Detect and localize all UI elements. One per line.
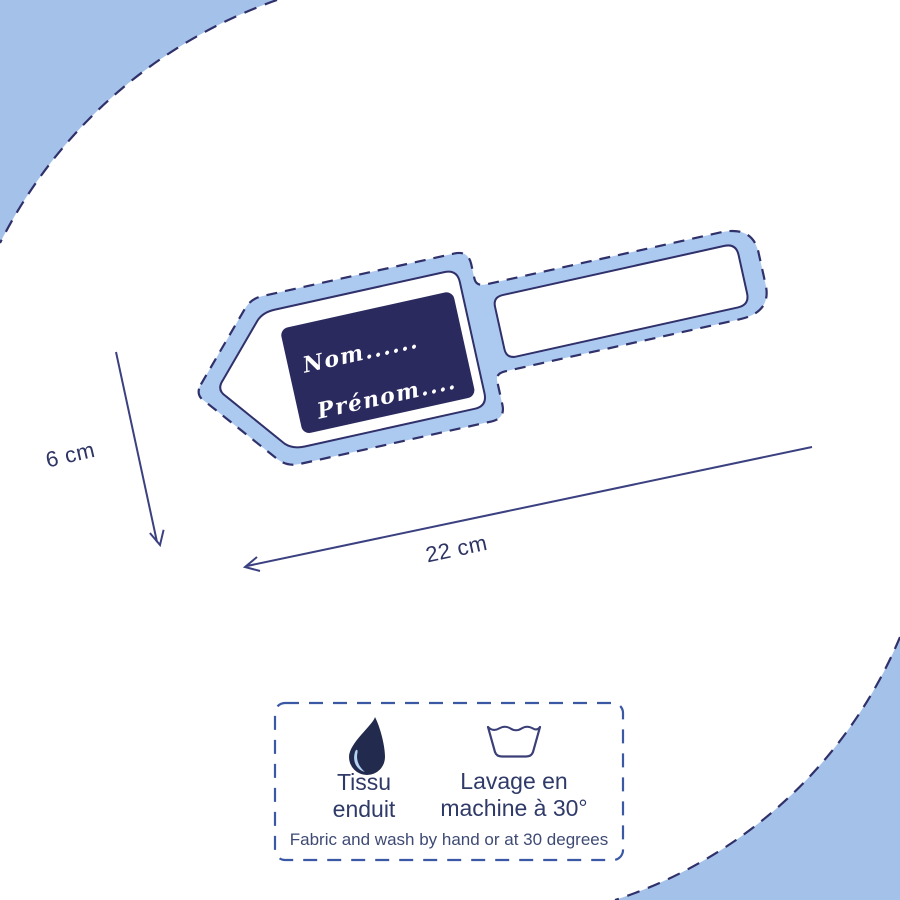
fabric-label-line2: enduit bbox=[333, 796, 396, 822]
name-tag: Nom...... Prénom.... bbox=[181, 189, 782, 482]
background-corner-top-left bbox=[0, 0, 277, 243]
width-dimension-label: 22 cm bbox=[423, 530, 489, 567]
dimension-line bbox=[116, 352, 157, 542]
height-dimension-label: 6 cm bbox=[43, 437, 97, 473]
wash-label-line2: machine à 30° bbox=[440, 795, 587, 821]
corner-blob-shape bbox=[615, 637, 900, 900]
care-subtitle-en: Fabric and wash by hand or at 30 degrees bbox=[290, 830, 608, 849]
corner-blob-shape bbox=[0, 0, 277, 243]
background-corner-bottom-right bbox=[615, 637, 900, 900]
width-dimension-arrow: 22 cm bbox=[245, 447, 812, 571]
dimension-line bbox=[247, 447, 812, 566]
wash-label-line1: Lavage en bbox=[460, 768, 567, 794]
diagram-canvas: Nom...... Prénom.... 6 cm 22 cm bbox=[0, 0, 900, 900]
product-diagram: Nom...... Prénom.... 6 cm 22 cm bbox=[0, 0, 900, 900]
height-dimension-arrow: 6 cm bbox=[43, 352, 163, 545]
fabric-label-line1: Tissu bbox=[337, 769, 391, 795]
care-instructions-box: Tissu enduit Lavage en machine à 30° Fab… bbox=[275, 703, 623, 860]
